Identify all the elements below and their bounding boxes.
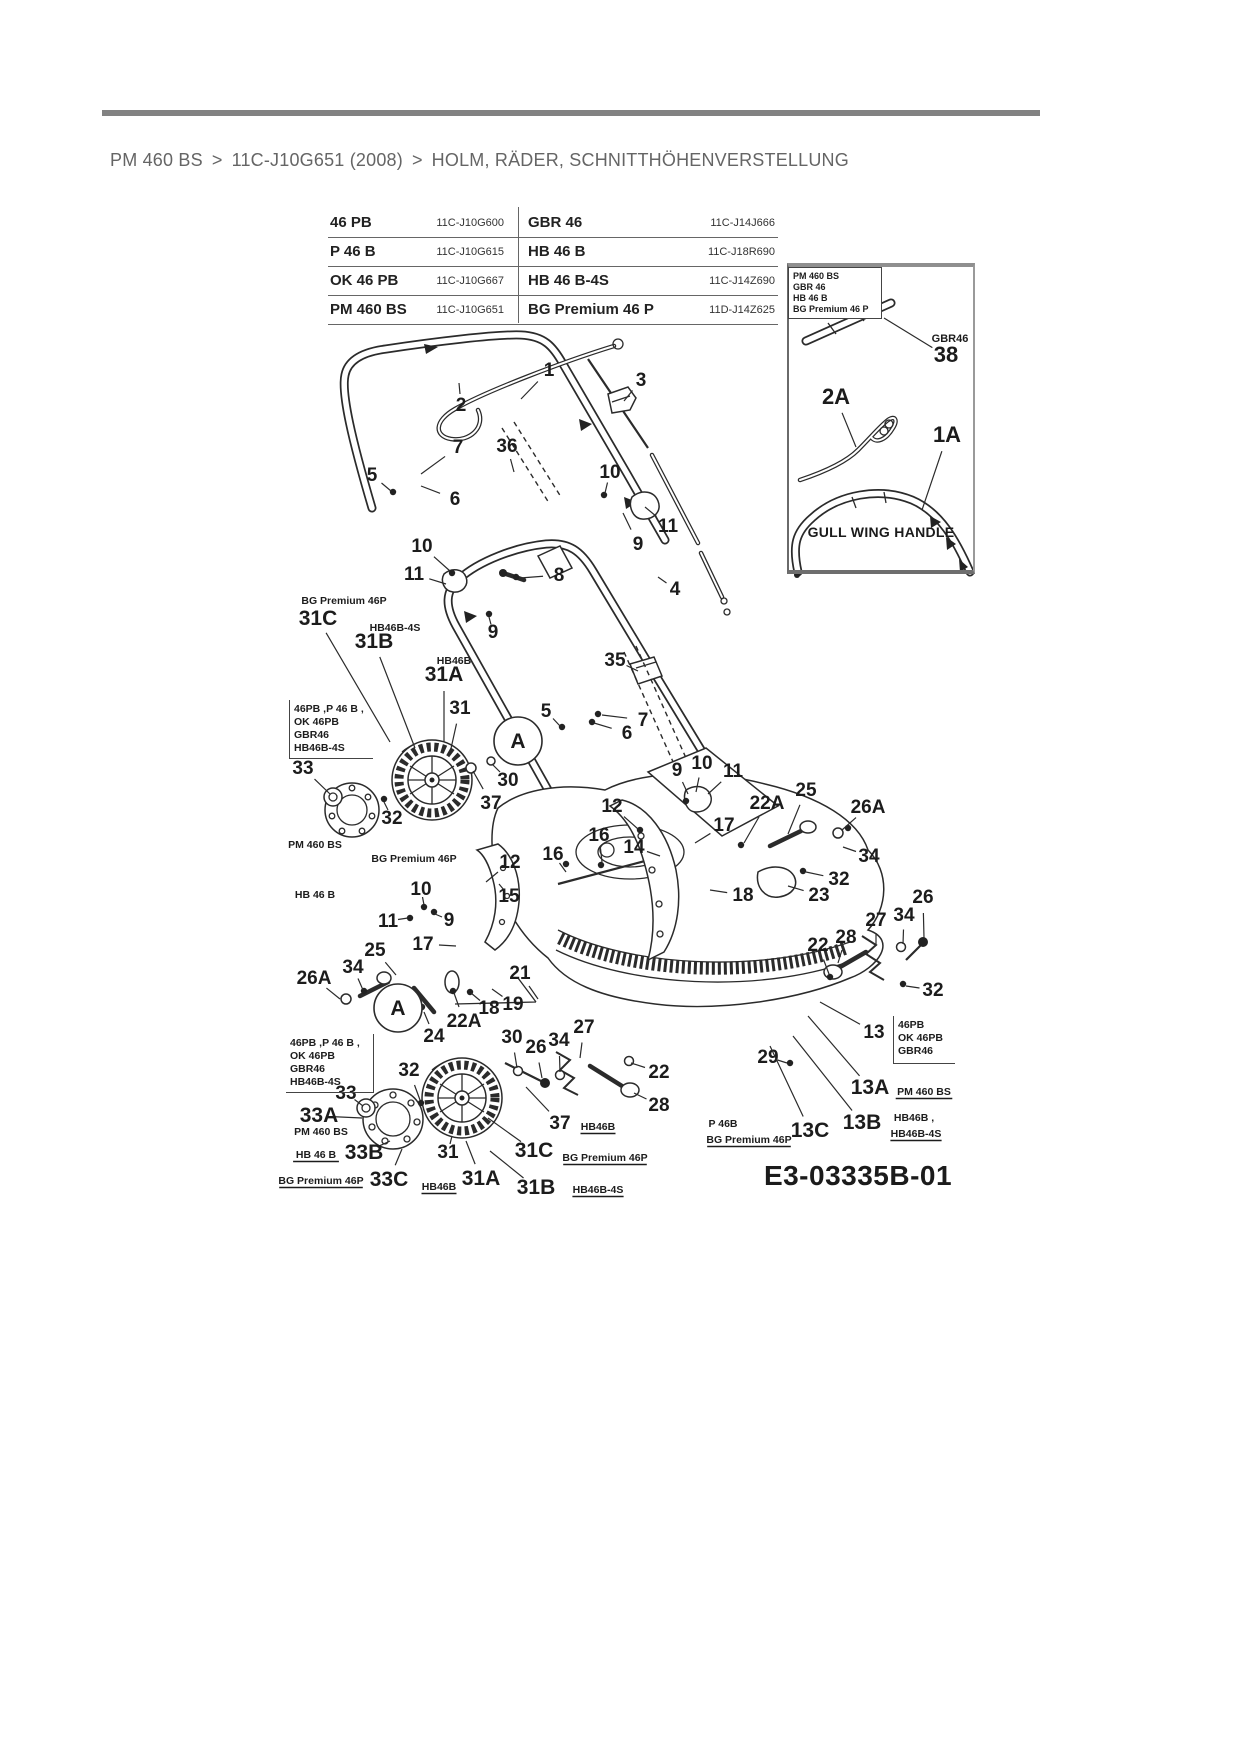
leader-line [903, 930, 904, 945]
part-callout-11: 11 [658, 516, 679, 537]
part-callout-21: 21 [509, 963, 531, 984]
model-name: HB 46 B [528, 243, 678, 260]
part-callout-26: 26 [525, 1037, 546, 1058]
part-callout-32: 32 [828, 869, 849, 890]
part-callout-3: 3 [636, 370, 647, 391]
part-callout-26A: 26A [297, 968, 332, 989]
leader-line [526, 1087, 549, 1111]
model-restriction-label: BG Premium 46P [278, 1175, 363, 1187]
model-table-row: P 46 B11C-J10G615HB 46 B11C-J18R690 [328, 238, 778, 267]
part-callout-9: 9 [633, 534, 644, 555]
leader-line [623, 513, 631, 530]
part-callout-13C: 13C [791, 1119, 830, 1142]
model-restriction-label: PM 460 BS [897, 1086, 951, 1098]
part-callout-7: 7 [453, 437, 464, 458]
part-callout-9: 9 [444, 910, 455, 931]
leader-line [658, 577, 667, 583]
model-restriction-label: P 46B [709, 1118, 738, 1130]
rear-wheel [422, 1058, 502, 1138]
model-restriction-label: BG Premium 46P [562, 1152, 647, 1164]
article-number: 11C-J14Z690 [668, 275, 775, 287]
leader-line [315, 779, 330, 794]
model-name: HB 46 B-4S [528, 272, 678, 289]
model-restriction-line: HB46B-4S [290, 1076, 369, 1089]
part-callout-36: 36 [496, 436, 517, 457]
model-restriction-label: BG Premium 46P [706, 1134, 791, 1146]
leader-line [923, 913, 924, 938]
part-callout-13: 13 [863, 1022, 884, 1043]
leader-line [454, 993, 459, 1007]
leader-line [602, 715, 627, 718]
part-callout-33A: 33A [300, 1104, 339, 1127]
part-callout-27: 27 [573, 1017, 594, 1038]
part-callout-24: 24 [423, 1026, 445, 1047]
part-callout-5: 5 [367, 465, 378, 486]
article-number: 11C-J10G615 [394, 246, 504, 258]
part-callout-8: 8 [554, 565, 565, 586]
part-callout-32: 32 [398, 1060, 419, 1081]
leader-line [421, 456, 445, 474]
model-restriction-label: PM 460 BS [294, 1126, 348, 1138]
inset-model-list: PM 460 BSGBR 46HB 46 BBG Premium 46 P [788, 267, 882, 319]
part-callout-31C: 31C [515, 1139, 554, 1162]
leader-line [459, 383, 460, 394]
part-callout-17: 17 [713, 815, 734, 836]
model-name: GBR 46 [528, 214, 678, 231]
article-number: 11D-J14Z625 [668, 304, 775, 316]
part-callout-11: 11 [404, 564, 425, 585]
leader-line [424, 1012, 429, 1024]
part-callout-4: 4 [670, 579, 681, 600]
leader-line [559, 1056, 560, 1072]
model-restriction-label: HB46B [581, 1121, 616, 1133]
part-callout-2: 2 [456, 395, 467, 416]
part-callout-27: 27 [865, 910, 886, 931]
model-restriction-label: HB46B [422, 1181, 457, 1193]
model-restriction-label: PM 460 BS [288, 839, 342, 851]
table-divider [518, 207, 519, 323]
leader-line [434, 557, 450, 571]
leader-line [580, 1043, 582, 1059]
article-number: 11C-J10G651 [394, 304, 504, 316]
part-callout-14: 14 [623, 837, 645, 858]
model-restriction-line: 46PB [898, 1019, 951, 1032]
part-callout-34: 34 [342, 957, 364, 978]
inset-model-name: PM 460 BS [793, 271, 877, 282]
part-callout-10: 10 [691, 753, 712, 774]
leader-line [778, 1060, 788, 1063]
part-callout-23: 23 [808, 885, 829, 906]
model-restriction-label: BG Premium 46P [371, 853, 456, 865]
part-callout-12: 12 [601, 796, 622, 817]
part-callout-22: 22 [807, 935, 828, 956]
part-callout-10: 10 [411, 536, 432, 557]
part-callout-6: 6 [450, 489, 461, 510]
part-callout-37: 37 [549, 1113, 570, 1134]
leader-line [435, 914, 442, 917]
leader-line [382, 483, 392, 491]
leader-line [466, 1141, 475, 1164]
leader-line [553, 719, 560, 727]
part-callout-26: 26 [912, 887, 933, 908]
leader-line [421, 486, 440, 493]
model-restriction-label: BG Premium 46P [301, 595, 386, 607]
part-callout-10: 10 [599, 462, 620, 483]
part-callout-34: 34 [858, 846, 880, 867]
part-callout-28: 28 [835, 927, 856, 948]
model-restriction-label: HB 46 B [296, 1149, 337, 1161]
breadcrumb-section: HOLM, RÄDER, SCHNITTHÖHENVERSTELLUNG [432, 150, 849, 170]
part-callout-16: 16 [588, 825, 609, 846]
lever [757, 867, 795, 897]
model-restriction-box: 46PBOK 46PBGBR46 [893, 1016, 955, 1064]
model-restriction-line: GBR46 [294, 729, 369, 742]
part-callout-10: 10 [410, 879, 431, 900]
part-callout-9: 9 [488, 622, 499, 643]
part-callout-33B: 33B [345, 1141, 384, 1164]
breadcrumb-separator: > [412, 150, 423, 170]
part-callout-28: 28 [648, 1095, 669, 1116]
model-restriction-line: OK 46PB [290, 1050, 369, 1063]
part-callout-34: 34 [548, 1030, 570, 1051]
model-restriction-label: HB 46 B [295, 889, 336, 901]
leader-line [793, 1036, 852, 1110]
leader-line [521, 382, 538, 399]
part-callout-17: 17 [412, 934, 433, 955]
breadcrumb: PM 460 BS>11C-J10G651 (2008)>HOLM, RÄDER… [110, 150, 849, 171]
part-callout-11: 11 [378, 911, 399, 932]
part-callout-22A: 22A [750, 793, 785, 814]
leader-line [520, 576, 543, 578]
part-callout-31B: 31B [517, 1176, 556, 1199]
model-table-row: OK 46 PB11C-J10G667HB 46 B-4S11C-J14Z690 [328, 267, 778, 296]
leader-line [529, 986, 538, 999]
model-restriction-box: 46PB ,P 46 B ,OK 46PBGBR46HB46B-4S [289, 700, 373, 759]
part-callout-25: 25 [795, 780, 817, 801]
part-callout-15: 15 [498, 886, 520, 907]
detail-marker-label: A [390, 997, 405, 1020]
inset-caption: GULL WING HANDLE [789, 524, 973, 540]
breadcrumb-separator: > [212, 150, 223, 170]
part-callout-33C: 33C [370, 1168, 409, 1191]
model-restriction-line: OK 46PB [294, 716, 369, 729]
leader-line [539, 1063, 542, 1079]
model-restriction-label: HB46B [437, 655, 472, 667]
model-table-row: 46 PB11C-J10G600GBR 4611C-J14J666 [328, 209, 778, 238]
part-callout-30: 30 [497, 770, 518, 791]
part-callout-13A: 13A [851, 1076, 890, 1099]
model-restriction-label: HB46B , [894, 1112, 934, 1124]
article-number: 11C-J10G600 [394, 217, 504, 229]
part-callout-11: 11 [723, 761, 744, 782]
part-callout-6: 6 [622, 723, 633, 744]
part-callout-26A: 26A [851, 797, 886, 818]
leader-line [820, 1002, 860, 1024]
leader-line [631, 1063, 645, 1068]
part-callout-35: 35 [604, 650, 626, 671]
part-callout-13B: 13B [843, 1111, 882, 1134]
part-callout-33: 33 [292, 758, 313, 779]
model-article-table: 46 PB11C-J10G600GBR 4611C-J14J666P 46 B1… [328, 209, 778, 325]
part-callout-31A: 31A [462, 1167, 501, 1190]
part-callout-18: 18 [478, 998, 499, 1019]
front-wheel [392, 740, 472, 820]
leader-line [511, 459, 515, 472]
article-number: 11C-J10G667 [394, 275, 504, 287]
wheel-hub-cap-rear [357, 1089, 423, 1149]
model-restriction-line: 46PB ,P 46 B , [294, 703, 369, 716]
part-callout-9: 9 [672, 760, 683, 781]
leader-line [395, 1149, 402, 1165]
breadcrumb-variant[interactable]: 11C-J10G651 (2008) [232, 150, 403, 170]
inset-model-name: GBR 46 [793, 282, 877, 293]
leader-line [515, 1053, 518, 1069]
part-callout-32: 32 [922, 980, 943, 1001]
part-callout-31: 31 [449, 698, 471, 719]
leader-line [415, 1085, 421, 1100]
leader-line [808, 1016, 860, 1076]
inset-model-name: BG Premium 46 P [793, 304, 877, 315]
article-number: 11C-J18R690 [668, 246, 775, 258]
model-name: BG Premium 46 P [528, 301, 678, 318]
model-restriction-label: HB46B-4S [370, 622, 421, 634]
model-restriction-line: OK 46PB [898, 1032, 951, 1045]
article-number: 11C-J14J666 [668, 217, 775, 229]
leader-line [770, 1046, 803, 1117]
part-callout-12: 12 [499, 852, 520, 873]
leader-line [605, 483, 608, 494]
part-callout-22: 22 [648, 1062, 669, 1083]
model-restriction-line: GBR46 [898, 1045, 951, 1058]
leader-line [473, 771, 483, 789]
leader-line [594, 723, 612, 728]
part-callout-25: 25 [364, 940, 386, 961]
drawing-number: E3-03335B-01 [717, 1160, 999, 1192]
wheel-hub-cap-front [324, 783, 379, 837]
leader-line [492, 989, 503, 997]
catalog-page: 123736561011910118435957631C31B31A313332… [0, 0, 1240, 1754]
leader-line [358, 979, 363, 991]
model-table-row: PM 460 BS11C-J10G651BG Premium 46 P11D-J… [328, 296, 778, 325]
part-callout-7: 7 [638, 710, 649, 731]
leader-line [906, 986, 920, 988]
top-rule [102, 110, 1040, 116]
part-callout-5: 5 [541, 701, 552, 722]
model-restriction-label: HB46B-4S [573, 1184, 624, 1196]
part-callout-22A: 22A [447, 1011, 482, 1032]
breadcrumb-model[interactable]: PM 460 BS [110, 150, 203, 170]
part-callout-1: 1 [544, 360, 555, 381]
model-restriction-line: 46PB ,P 46 B , [290, 1037, 369, 1050]
part-callout-31: 31 [437, 1142, 459, 1163]
leader-line [335, 1117, 362, 1118]
part-callout-16: 16 [542, 844, 563, 865]
inset-model-name: HB 46 B [793, 293, 877, 304]
model-restriction-box: 46PB ,P 46 B ,OK 46PBGBR46HB46B-4S [286, 1034, 374, 1093]
part-callout-32: 32 [381, 808, 402, 829]
leader-line [326, 988, 340, 999]
part-callout-30: 30 [501, 1027, 522, 1048]
leader-line [398, 918, 408, 920]
detail-marker-label: A [510, 730, 525, 753]
leader-line [439, 945, 456, 946]
part-callout-18: 18 [732, 885, 753, 906]
model-restriction-line: GBR46 [290, 1063, 369, 1076]
part-callout-19: 19 [502, 994, 523, 1015]
part-callout-34: 34 [893, 905, 915, 926]
part-callout-37: 37 [480, 793, 501, 814]
part-callout-31C: 31C [299, 607, 338, 630]
model-restriction-line: HB46B-4S [294, 742, 369, 755]
model-restriction-label: HB46B-4S [891, 1128, 942, 1140]
